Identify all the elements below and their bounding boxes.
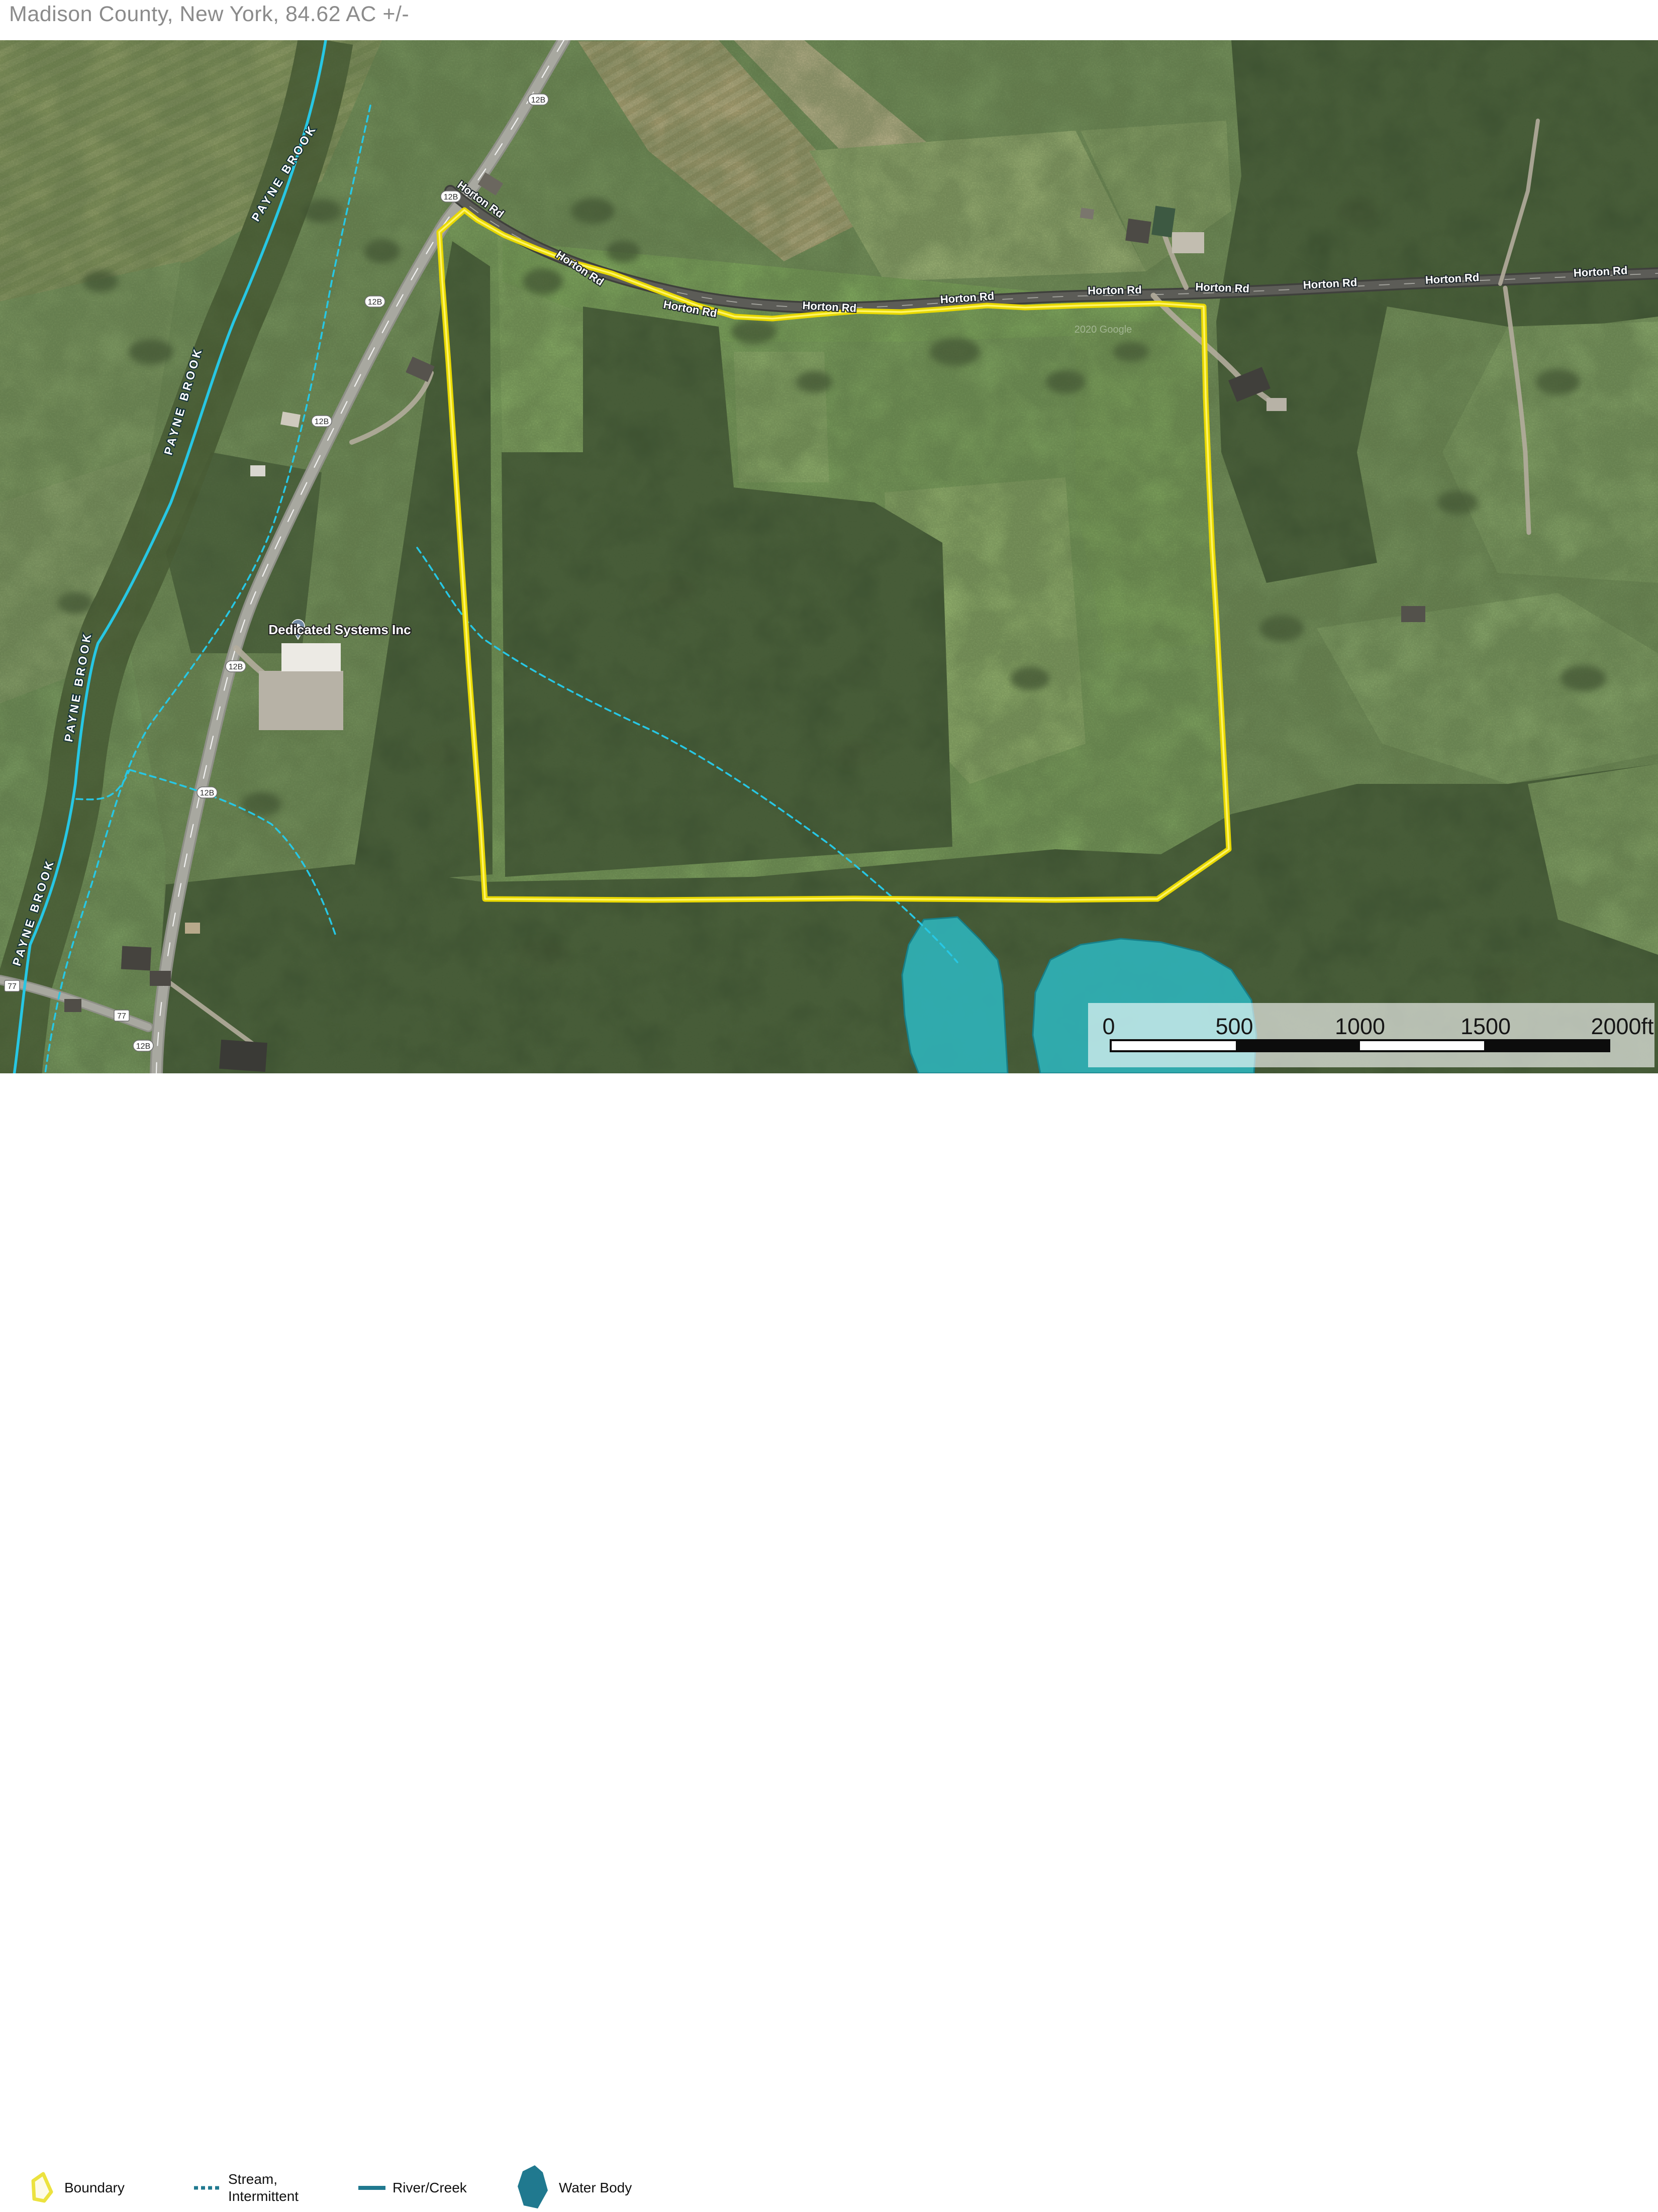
boundary-icon <box>29 2172 53 2204</box>
water-body-icon <box>517 2165 550 2210</box>
route-shield-text: 12B <box>136 1042 150 1051</box>
legend-label-boundary: Boundary <box>64 2179 125 2196</box>
legend-label-water: Water Body <box>559 2179 632 2196</box>
aerial-map: Horton RdHorton RdHorton RdHorton RdHort… <box>0 40 1658 1073</box>
poi-label: Dedicated Systems Inc <box>268 622 411 637</box>
road-label: Horton Rd <box>1088 283 1142 297</box>
route-shield-text: 77 <box>117 1012 126 1021</box>
stream-intermittent-icon <box>194 2185 221 2191</box>
scale-bar: 0 500 1000 1500 2000ft <box>1088 1003 1654 1067</box>
route-shield-text: 12B <box>368 298 382 307</box>
route-shield: 12B <box>365 296 385 307</box>
route-shield-text: 12B <box>200 789 214 797</box>
watermark-label: 2020 Google <box>1075 324 1132 335</box>
scale-tick: 500 <box>1215 1014 1253 1039</box>
scale-tick: 0 <box>1102 1014 1115 1039</box>
route-shield: 12B <box>441 191 461 202</box>
scale-end-label: 2000ft <box>1591 1014 1654 1039</box>
page-title: Madison County, New York, 84.62 AC +/- <box>9 2 409 27</box>
legend-label-stream-line2: Intermittent <box>228 2188 299 2205</box>
river-creek-icon <box>358 2185 385 2191</box>
route-shield-text: 12B <box>315 418 329 426</box>
route-shield: 12B <box>312 416 332 427</box>
route-shield-text: 12B <box>229 663 243 671</box>
route-shield: 12B <box>226 661 246 672</box>
legend-label-stream: Stream, Intermittent <box>228 2171 299 2205</box>
route-shield: 77 <box>5 980 20 991</box>
scale-tick: 1500 <box>1460 1014 1511 1039</box>
legend: Boundary Stream, Intermittent River/Cree… <box>0 1073 1658 1153</box>
map-export-page: { "title": "Madison County, New York, 84… <box>0 0 1658 1153</box>
legend-item-water: Water Body <box>517 2164 632 2212</box>
route-shield-text: 12B <box>444 193 458 202</box>
road-label: Horton Rd <box>1195 280 1249 295</box>
legend-label-stream-line1: Stream, <box>228 2171 299 2188</box>
legend-item-stream: Stream, Intermittent <box>194 2164 299 2212</box>
route-shield: 77 <box>114 1010 129 1021</box>
route-shield-text: 12B <box>531 96 545 105</box>
terrain <box>0 40 1658 1073</box>
route-shield-text: 77 <box>8 982 17 991</box>
legend-item-boundary: Boundary <box>29 2164 125 2212</box>
route-shield: 12B <box>528 94 548 105</box>
scale-tick: 1000 <box>1335 1014 1385 1039</box>
route-shield: 12B <box>197 787 217 798</box>
legend-item-river: River/Creek <box>358 2164 467 2212</box>
route-shield: 12B <box>133 1040 153 1051</box>
legend-label-river: River/Creek <box>393 2179 467 2196</box>
